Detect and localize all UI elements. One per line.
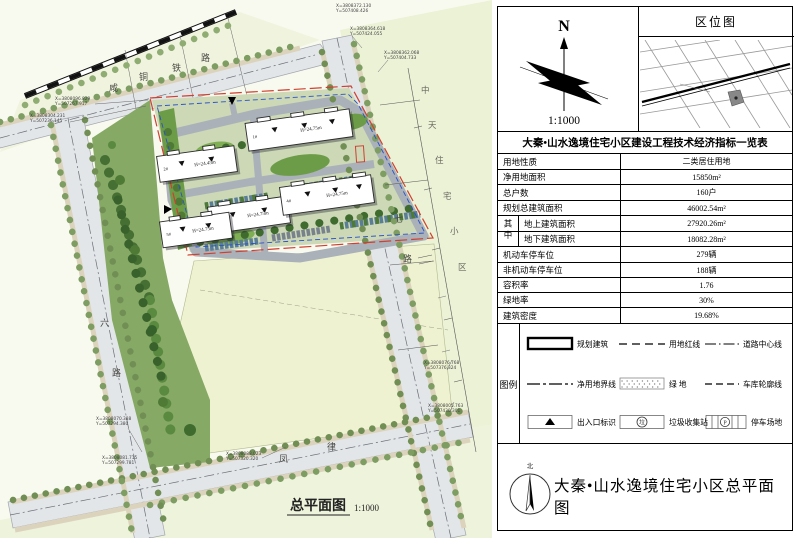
coord-label: X=3808070.388Y=507294.380: [95, 416, 132, 427]
legend-item: 车库轮廓线: [704, 372, 782, 396]
green-space-swatch: [618, 376, 666, 392]
railway-name-char: 路: [201, 52, 210, 63]
east-area-char: 区: [458, 262, 467, 272]
coord-label: X=3808088.023Y=507320.320: [225, 451, 262, 462]
row-value: 160户: [621, 185, 792, 200]
row-value: 279辆: [621, 247, 792, 262]
north-scale: 1:1000: [548, 115, 580, 127]
table-row: 净用地面积 15850m²: [498, 169, 792, 184]
parking-area-swatch: P: [704, 414, 748, 430]
title-and-data-panel: N 1:1000 区位图 大秦•山水逸境住宅小区建设工程技术经济指: [497, 6, 793, 531]
garage-outline-swatch: [704, 376, 740, 392]
coord-label: X=3808081.715Y=507299.781: [101, 455, 138, 466]
row-value: 1.76: [621, 278, 792, 292]
table-row: 建筑密度 19.68%: [498, 307, 792, 323]
compass-icon: 北: [504, 458, 560, 520]
table-row: 规划总建筑面积 46002.54m²: [498, 200, 792, 215]
north-arrow-icon: N 1:1000: [498, 7, 636, 129]
drawing-scale: 1:1000: [354, 503, 380, 513]
row-value: 188辆: [621, 263, 792, 277]
table-row: 容积率 1.76: [498, 277, 792, 292]
east-area-char: 住: [435, 155, 444, 165]
legend-item: 绿 地: [618, 372, 687, 396]
site-plan-drawing: 1# H=24.75m 2# H=24.45m 3# H=24.75m: [0, 0, 492, 538]
row-label: 地上建筑面积: [518, 216, 621, 231]
table-row: 地下建筑面积 18082.28m²: [498, 231, 792, 246]
screenshot-root: 1# H=24.75m 2# H=24.45m 3# H=24.75m: [0, 0, 800, 538]
railway-name-char: 铁: [172, 62, 181, 73]
row-label: 总户数: [498, 185, 621, 200]
location-map-title: 区位图: [638, 7, 794, 37]
drawing-title: 总平面图: [290, 497, 346, 514]
row-value: 18082.28m²: [621, 232, 792, 246]
railway-name-char: 铜: [139, 71, 148, 82]
east-area-char: 小: [450, 226, 459, 236]
east-area-char: 中: [421, 85, 430, 95]
row-label: 规划总建筑面积: [498, 201, 621, 215]
north-arrow-cell: N 1:1000: [498, 7, 638, 131]
legend-item: P 停车场地: [704, 410, 782, 434]
row-label: 容积率: [498, 278, 621, 292]
right-road-name-char: 七: [394, 214, 403, 224]
row-value: 二类居住用地: [621, 154, 792, 169]
planned-building-swatch: [526, 336, 574, 352]
row-value: 19.68%: [621, 308, 792, 323]
table-title: 大秦•山水逸境住宅小区建设工程技术经济指标一览表: [498, 131, 792, 153]
trash-char: 垃: [639, 418, 645, 426]
left-road-name-char: 路: [112, 367, 121, 378]
row-value: 46002.54m²: [621, 201, 792, 215]
group-label: 其中: [498, 215, 518, 246]
north-label: N: [558, 18, 570, 35]
row-label: 地下建筑面积: [518, 232, 621, 246]
legend-item: 道路中心线: [704, 332, 782, 356]
bottom-road-name-char: 凤: [279, 454, 288, 464]
row-label: 绿地率: [498, 293, 621, 307]
railway-name-char: 咸: [109, 82, 118, 93]
table-row: 非机动车停车位 188辆: [498, 262, 792, 277]
table-row: 用地性质 二类居住用地: [498, 153, 792, 169]
legend: 图例 规划建筑 用地红线 道路中心线 净用地界线: [498, 323, 792, 443]
table-row: 总户数 160户: [498, 184, 792, 200]
title-block: 北 大秦•山水逸境住宅小区总平面图: [498, 443, 792, 531]
coord-label: X=3808304.231Y=507236.145: [29, 113, 66, 124]
coord-label: X=3808364.618Y=507424.055: [349, 26, 386, 37]
entrance-marker-swatch: [526, 414, 574, 430]
legend-item: 出入口标识: [526, 410, 616, 434]
row-value: 27920.26m²: [621, 216, 792, 231]
legend-item: 垃 垃圾收集站: [618, 410, 708, 434]
location-map: [640, 40, 792, 128]
trash-station-swatch: 垃: [618, 414, 666, 430]
bottom-road-name-char: 律: [327, 441, 336, 452]
row-label: 用地性质: [498, 154, 621, 169]
row-value: 30%: [621, 293, 792, 307]
table-row: 绿地率 30%: [498, 292, 792, 307]
sheet-title: 大秦•山水逸境住宅小区总平面图: [554, 474, 790, 518]
row-label: 非机动车停车位: [498, 263, 621, 277]
coord-label: X=3808076.768Y=507376.324: [423, 360, 460, 371]
east-area-char: 宅: [443, 191, 452, 201]
road-centerline-swatch: [704, 336, 740, 352]
row-label: 机动车停车位: [498, 247, 621, 262]
coord-label: X=3808096.829Y=507267.917: [54, 96, 91, 107]
coord-label: X=3808005.763Y=507430.301: [427, 403, 464, 414]
red-line-swatch: [618, 336, 666, 352]
east-area-char: 天: [428, 120, 437, 130]
legend-label: 图例: [498, 324, 520, 444]
net-land-line-swatch: [526, 376, 574, 392]
compass-north-char: 北: [527, 462, 534, 470]
coord-label: X=3808362.068Y=507404.733: [383, 50, 420, 61]
legend-item: 净用地界线: [526, 372, 616, 396]
table-row: 地上建筑面积 27920.26m²: [498, 215, 792, 231]
table-row: 机动车停车位 279辆: [498, 246, 792, 262]
legend-item: 规划建筑: [526, 332, 608, 356]
left-road-name-char: 六: [100, 317, 109, 328]
right-road-name-char: 路: [403, 253, 412, 264]
row-label: 建筑密度: [498, 308, 621, 323]
row-value: 15850m²: [621, 170, 792, 184]
legend-item: 用地红线: [618, 332, 700, 356]
row-label: 净用地面积: [498, 170, 621, 184]
coord-label: X=3808372.130Y=507408.426: [335, 3, 372, 14]
